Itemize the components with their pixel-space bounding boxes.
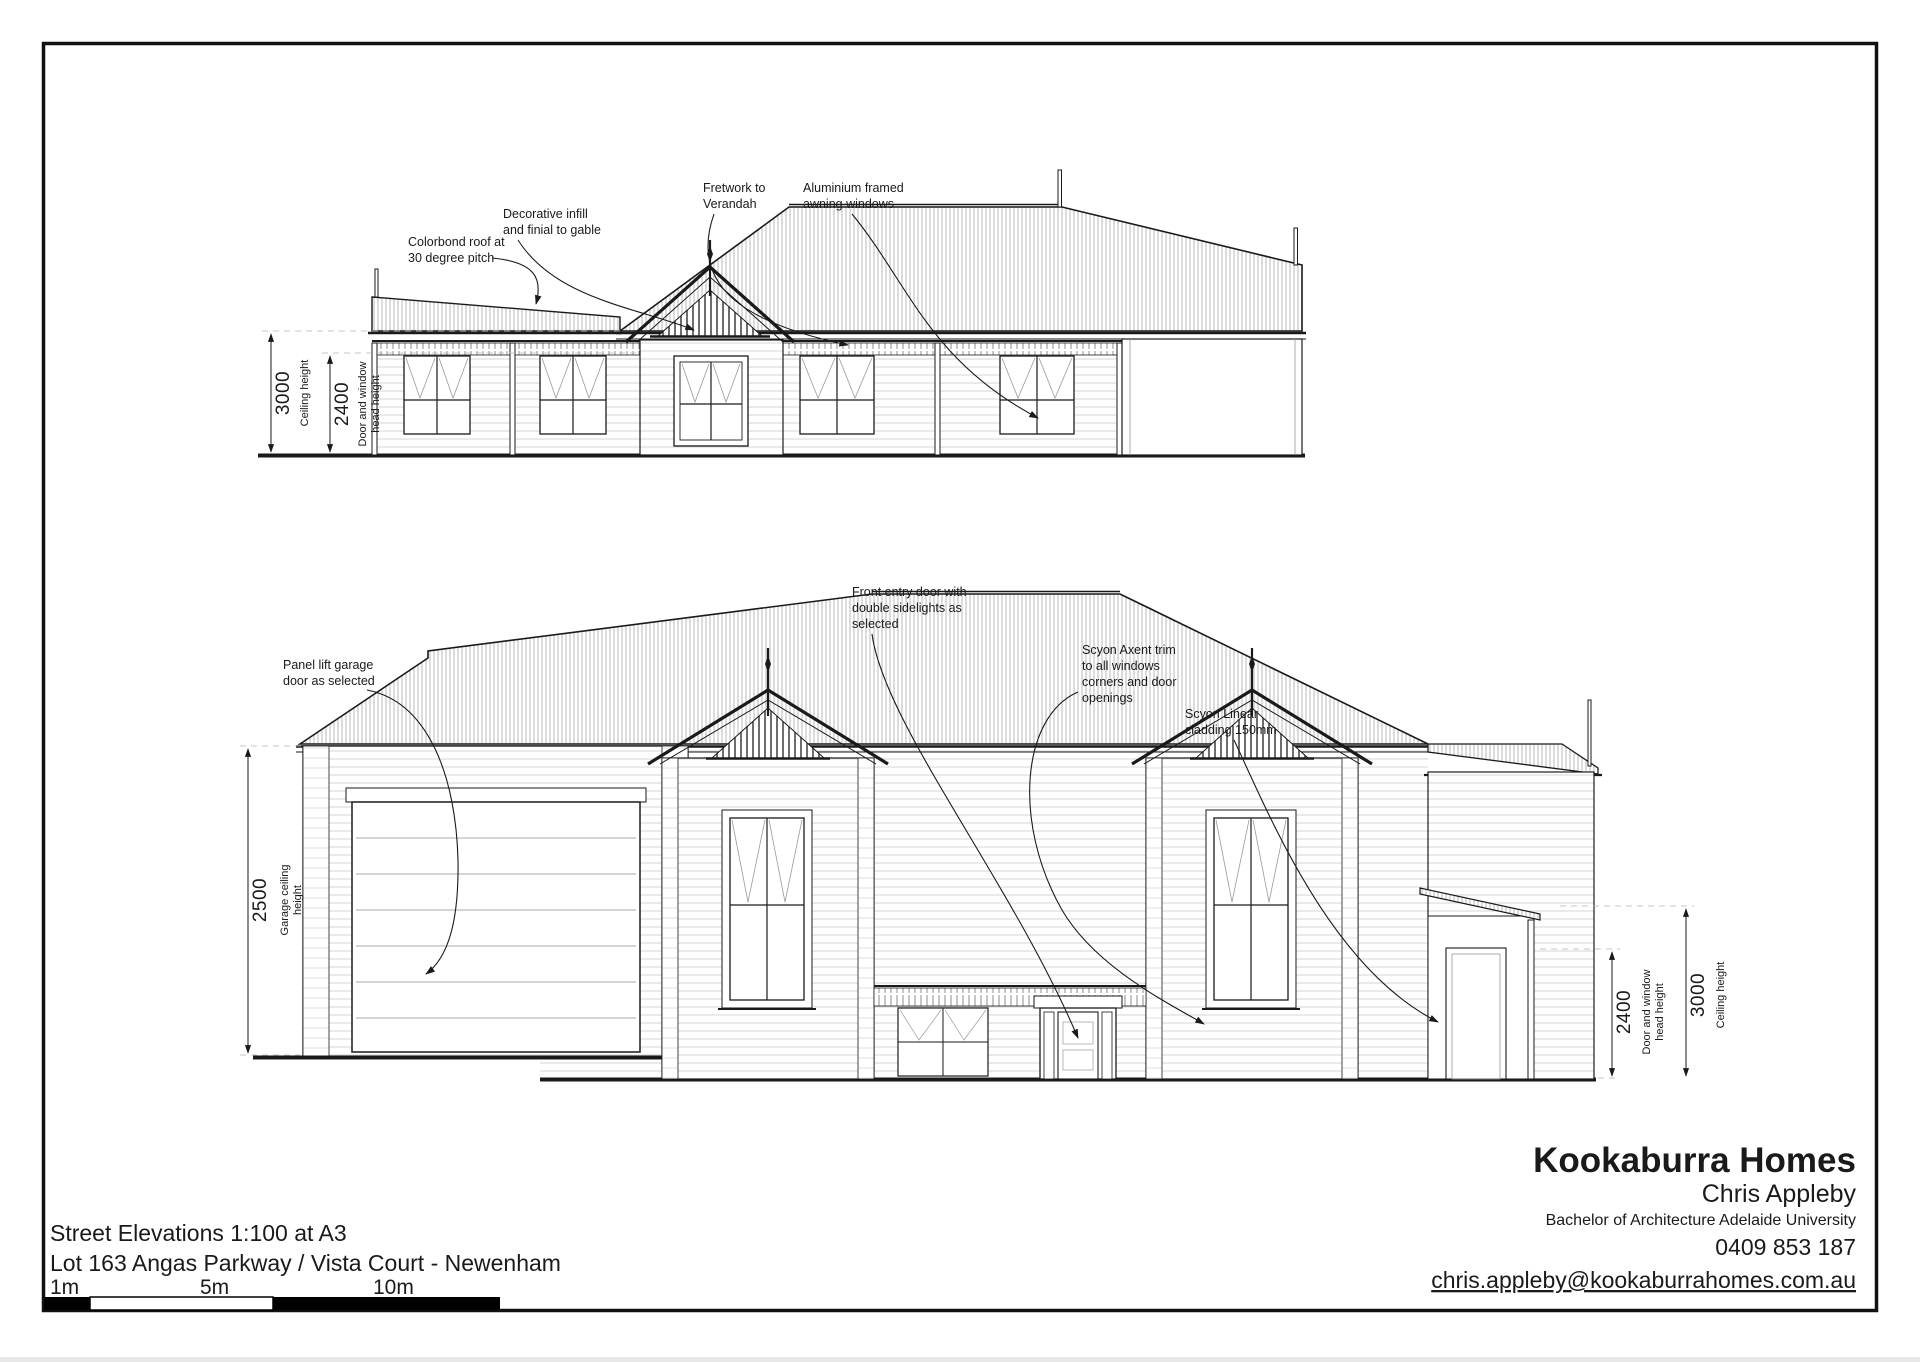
wing-flue: [1588, 700, 1591, 766]
title-block: Street Elevations 1:100 at A3 Lot 163 An…: [44, 1220, 561, 1310]
drawing-sheet: 3000 Ceiling height 2400 Door and window…: [0, 0, 1920, 1357]
right-side-wall: [1122, 339, 1302, 455]
dim-label: head height: [370, 375, 382, 433]
annotation-colorbond: Colorbond roof at: [408, 235, 505, 249]
window: [674, 356, 748, 446]
scale-segment-black: [273, 1297, 500, 1310]
window: [898, 1008, 988, 1076]
window: [404, 356, 470, 434]
annotation-fretwork: Fretwork to: [703, 181, 766, 195]
window: [800, 356, 874, 434]
annotation-axent-trim: Scyon Axent trim: [1082, 643, 1176, 657]
company-block: Kookaburra Homes Chris Appleby Bachelor …: [1431, 1141, 1856, 1293]
svg-text:awning windows: awning windows: [803, 197, 894, 211]
garage-door-head-trim: [346, 788, 646, 802]
right-wing-roof: [1424, 700, 1602, 775]
window: [1202, 810, 1300, 1009]
dim-label: height: [292, 885, 304, 915]
porch-post: [1528, 920, 1534, 1079]
sidelight: [1102, 1012, 1112, 1079]
window: [540, 356, 606, 434]
svg-text:to all windows: to all windows: [1082, 659, 1160, 673]
dim-label: head height: [1654, 983, 1666, 1041]
axent-corner-trim: [303, 746, 329, 1057]
elevation-sheet-svg: 3000 Ceiling height 2400 Door and window…: [0, 0, 1920, 1357]
scale-segment-white: [90, 1297, 273, 1310]
svg-text:30 degree pitch: 30 degree pitch: [408, 251, 494, 265]
dim-value: 3000: [273, 371, 294, 415]
annotation-linear-cladding: Scyon Linear: [1185, 707, 1258, 721]
company-email-link[interactable]: chris.appleby@kookaburrahomes.com.au: [1431, 1267, 1856, 1293]
dim-label: Ceiling height: [1715, 962, 1727, 1029]
dim-value: 2400: [332, 382, 353, 426]
dim-label: Door and window: [357, 361, 369, 446]
svg-text:openings: openings: [1082, 691, 1133, 705]
sheet-title: Street Elevations 1:100 at A3: [50, 1220, 347, 1246]
leader-colorbond: [492, 258, 538, 304]
annotation-garage-door: Panel lift garage: [283, 658, 373, 672]
company-person: Chris Appleby: [1702, 1180, 1857, 1208]
dim-label: Garage ceiling: [279, 865, 291, 936]
scale-label-10m: 10m: [373, 1276, 414, 1299]
garage: [303, 746, 688, 1057]
annotation-gable-infill: Decorative infill: [503, 207, 588, 221]
skillion-flue: [375, 269, 378, 297]
bottom-elevation-drawing: 2500 Garage ceiling height 2400 Door and…: [240, 585, 1727, 1080]
svg-text:double sidelights as: double sidelights as: [852, 601, 962, 615]
scale-segment-black: [44, 1297, 90, 1310]
company-phone: 0409 853 187: [1715, 1234, 1856, 1260]
company-name: Kookaburra Homes: [1533, 1141, 1856, 1180]
dim-value: 2500: [250, 878, 271, 922]
window: [1000, 356, 1074, 434]
svg-text:selected: selected: [852, 617, 899, 631]
scale-label-1m: 1m: [50, 1276, 79, 1299]
scale-label-5m: 5m: [200, 1276, 229, 1299]
svg-text:corners and door: corners and door: [1082, 675, 1177, 689]
scale-bar: 1m 5m 10m: [44, 1276, 500, 1310]
svg-text:and finial to gable: and finial to gable: [503, 223, 601, 237]
top-elevation-drawing: 3000 Ceiling height 2400 Door and window…: [258, 170, 1306, 456]
svg-text:door as selected: door as selected: [283, 674, 375, 688]
garage-door: [352, 802, 640, 1052]
dim-value: 3000: [1688, 973, 1709, 1017]
sheet-subtitle: Lot 163 Angas Parkway / Vista Court - Ne…: [50, 1250, 561, 1276]
annotation-entry-door: Front entry door with: [852, 585, 967, 599]
dim-label: Door and window: [1641, 969, 1653, 1054]
roof-flue: [1058, 170, 1062, 207]
dim-label: Ceiling height: [299, 360, 311, 427]
dim-garage-ceiling: 2500 Garage ceiling height: [240, 746, 304, 1055]
dim-value: 2400: [1614, 990, 1635, 1034]
right-wing: [1420, 772, 1594, 1079]
porch-opening: [1446, 948, 1506, 1079]
svg-text:Verandah: Verandah: [703, 197, 757, 211]
roof-flue-right: [1294, 228, 1298, 265]
left-skillion-roof: [372, 297, 620, 331]
annotation-awning-windows: Aluminium framed: [803, 181, 904, 195]
company-credentials: Bachelor of Architecture Adelaide Univer…: [1546, 1212, 1856, 1229]
window: [718, 810, 816, 1009]
sidelight: [1044, 1012, 1054, 1079]
svg-text:cladding 150mm: cladding 150mm: [1185, 723, 1277, 737]
